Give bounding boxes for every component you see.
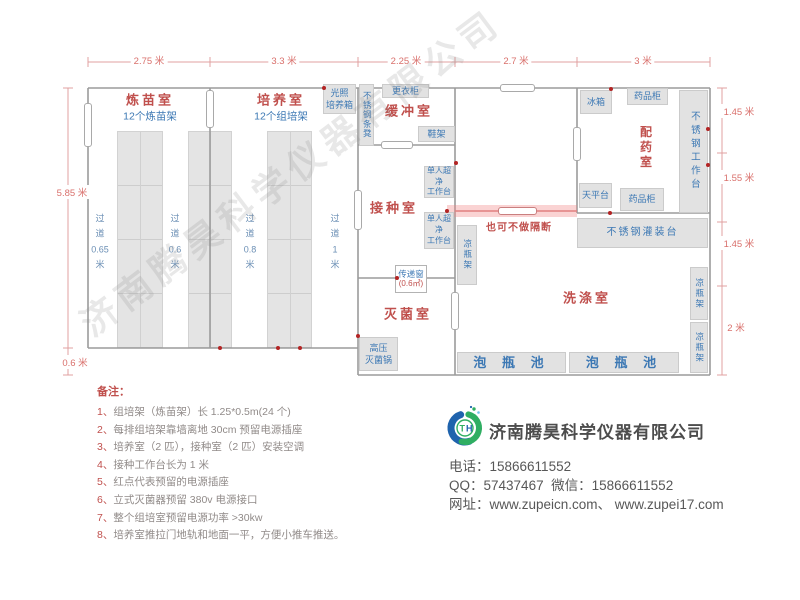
contact-web-row: 网址：www.zupeicn.com、 www.zupei17.com	[449, 493, 724, 513]
power-socket-dot	[706, 163, 710, 167]
dim-top-2: 3.3 米	[268, 53, 299, 67]
qq-label: QQ：	[449, 478, 484, 493]
phone-label: 电话：	[449, 459, 490, 474]
equipment-bottle-rack-middle: 凉瓶架	[457, 225, 477, 285]
door-peiyang-jiezhong	[354, 190, 362, 230]
power-socket-dot	[356, 334, 360, 338]
optional-partition-note: 也可不做隔断	[486, 219, 552, 234]
svg-text:H: H	[466, 424, 473, 434]
door-peiyao	[573, 127, 581, 161]
equipment-fridge: 冰箱	[580, 90, 612, 114]
door-top-right-area	[500, 84, 535, 92]
dim-top-5: 3 米	[631, 53, 654, 67]
door-lianmiao-peiyang	[206, 90, 214, 128]
transfer-window: 传递窗 (0.6㎡)	[395, 265, 427, 293]
dim-right-4: 2 米	[724, 320, 747, 334]
equipment-clean-bench-2: 单人超净 工作台	[424, 212, 454, 249]
note-item: 8、培养室推拉门地轨和地面一平，方便小推车推送。	[97, 527, 344, 545]
aisle-label-3: 过 道 0.8 米	[244, 211, 257, 272]
dim-right-3: 1.45 米	[721, 236, 758, 250]
power-socket-dot	[445, 209, 449, 213]
room-label-miejun: 灭菌室	[384, 304, 432, 323]
room-label-xidi: 洗涤室	[563, 288, 611, 307]
door-lianmiao-entrance	[84, 103, 92, 147]
contact-phone-row: 电话：15866611552	[449, 455, 571, 475]
notes-heading: 备注：	[97, 383, 344, 399]
phone-number: 15866611552	[490, 459, 572, 474]
door-miejun-xidi	[451, 292, 459, 330]
note-item: 1、组培架（炼苗架）长 1.25*0.5m(24 个)	[97, 404, 344, 422]
equipment-bottle-rack-right-2: 凉瓶架	[690, 322, 708, 373]
note-item: 3、培养室（2 匹），接种室（2 匹）安装空调	[97, 439, 344, 457]
equipment-wardrobe: 更衣柜	[382, 84, 429, 98]
notes-section: 备注： 1、组培架（炼苗架）长 1.25*0.5m(24 个) 2、每排组培架靠…	[97, 383, 344, 545]
room-label-lianmiao: 炼苗室	[126, 90, 174, 109]
equipment-shoe-rack: 鞋架	[418, 126, 455, 142]
equipment-balance-table: 天平台	[579, 183, 612, 208]
wechat-number: 15866611552	[592, 478, 674, 493]
power-socket-dot	[298, 346, 302, 350]
dim-top-4: 2.7 米	[500, 53, 531, 67]
equipment-ss-worktable: 不锈钢工作台	[679, 90, 708, 213]
equipment-ss-filling-table: 不锈钢灌装台	[577, 218, 708, 248]
room-label-huanchong: 缓冲室	[385, 101, 433, 120]
aisle-label-4: 过 道 1 米	[330, 211, 339, 272]
equipment-ss-bench: 不锈钢条凳	[359, 84, 374, 146]
equipment-medicine-cabinet-bottom: 药品柜	[620, 188, 664, 211]
floor-plan-page: 2.75 米 3.3 米 2.25 米 2.7 米 3 米 5.85 米 0.6…	[0, 0, 800, 600]
wechat-label: 微信：	[544, 478, 592, 493]
company-name: 济南腾昊科学仪器有限公司	[489, 418, 705, 443]
aisle-label-2: 过 道 0.6 米	[169, 211, 182, 272]
note-item: 6、立式灭菌器预留 380v 电源接口	[97, 492, 344, 510]
room-label-jiezhong: 接种室	[370, 198, 418, 217]
web-label: 网址：	[449, 497, 490, 512]
transfer-window-label: 传递窗	[398, 269, 424, 280]
dim-right-1: 1.45 米	[721, 104, 758, 118]
power-socket-dot	[218, 346, 222, 350]
power-socket-dot	[608, 211, 612, 215]
equipment-soak-pool-1: 泡 瓶 池	[457, 352, 566, 373]
equipment-clean-bench-1: 单人超净 工作台	[424, 166, 454, 198]
power-socket-dot	[322, 86, 326, 90]
power-socket-dot	[609, 87, 613, 91]
power-socket-dot	[706, 127, 710, 131]
note-item: 2、每排组培架靠墙离地 30cm 预留电源插座	[97, 422, 344, 440]
power-socket-dot	[454, 161, 458, 165]
dim-left-1: 5.85 米	[54, 185, 91, 199]
room-sub-peiyang: 12个组培架	[254, 109, 308, 124]
dim-left-2: 0.6 米	[59, 355, 90, 369]
equipment-bottle-rack-right-1: 凉瓶架	[690, 267, 708, 320]
dim-right-2: 1.55 米	[721, 170, 758, 184]
aisle-label-1: 过 道 0.65 米	[91, 211, 109, 272]
power-socket-dot	[276, 346, 280, 350]
equipment-soak-pool-2: 泡 瓶 池	[569, 352, 679, 373]
dim-top-3: 2.25 米	[388, 53, 425, 67]
contact-qq-row: QQ：57437467 微信：15866611552	[449, 474, 673, 494]
web-urls: www.zupeicn.com、 www.zupei17.com	[490, 497, 724, 512]
equipment-medicine-cabinet-top: 药品柜	[627, 88, 668, 105]
qq-number: 57437467	[484, 478, 544, 493]
dim-top-1: 2.75 米	[131, 53, 168, 67]
svg-text:T: T	[460, 424, 466, 434]
note-item: 7、整个组培室预留电源功率 >30kw	[97, 510, 344, 528]
note-item: 5、红点代表预留的电源插座	[97, 474, 344, 492]
room-label-peiyao: 配药室	[638, 126, 655, 171]
door-huanchong-jiezhong	[381, 141, 413, 149]
equipment-light-incubator: 光照 培养箱	[323, 84, 356, 114]
door-optional-partition	[498, 207, 537, 215]
room-label-peiyang: 培养室	[257, 90, 305, 109]
room-sub-lianmiao: 12个炼苗架	[123, 109, 177, 124]
company-logo-icon: T H	[443, 405, 487, 451]
note-item: 4、接种工作台长为 1 米	[97, 457, 344, 475]
equipment-autoclave: 高压 灭菌锅	[359, 337, 398, 371]
transfer-window-area: (0.6㎡)	[399, 279, 423, 289]
power-socket-dot	[395, 276, 399, 280]
